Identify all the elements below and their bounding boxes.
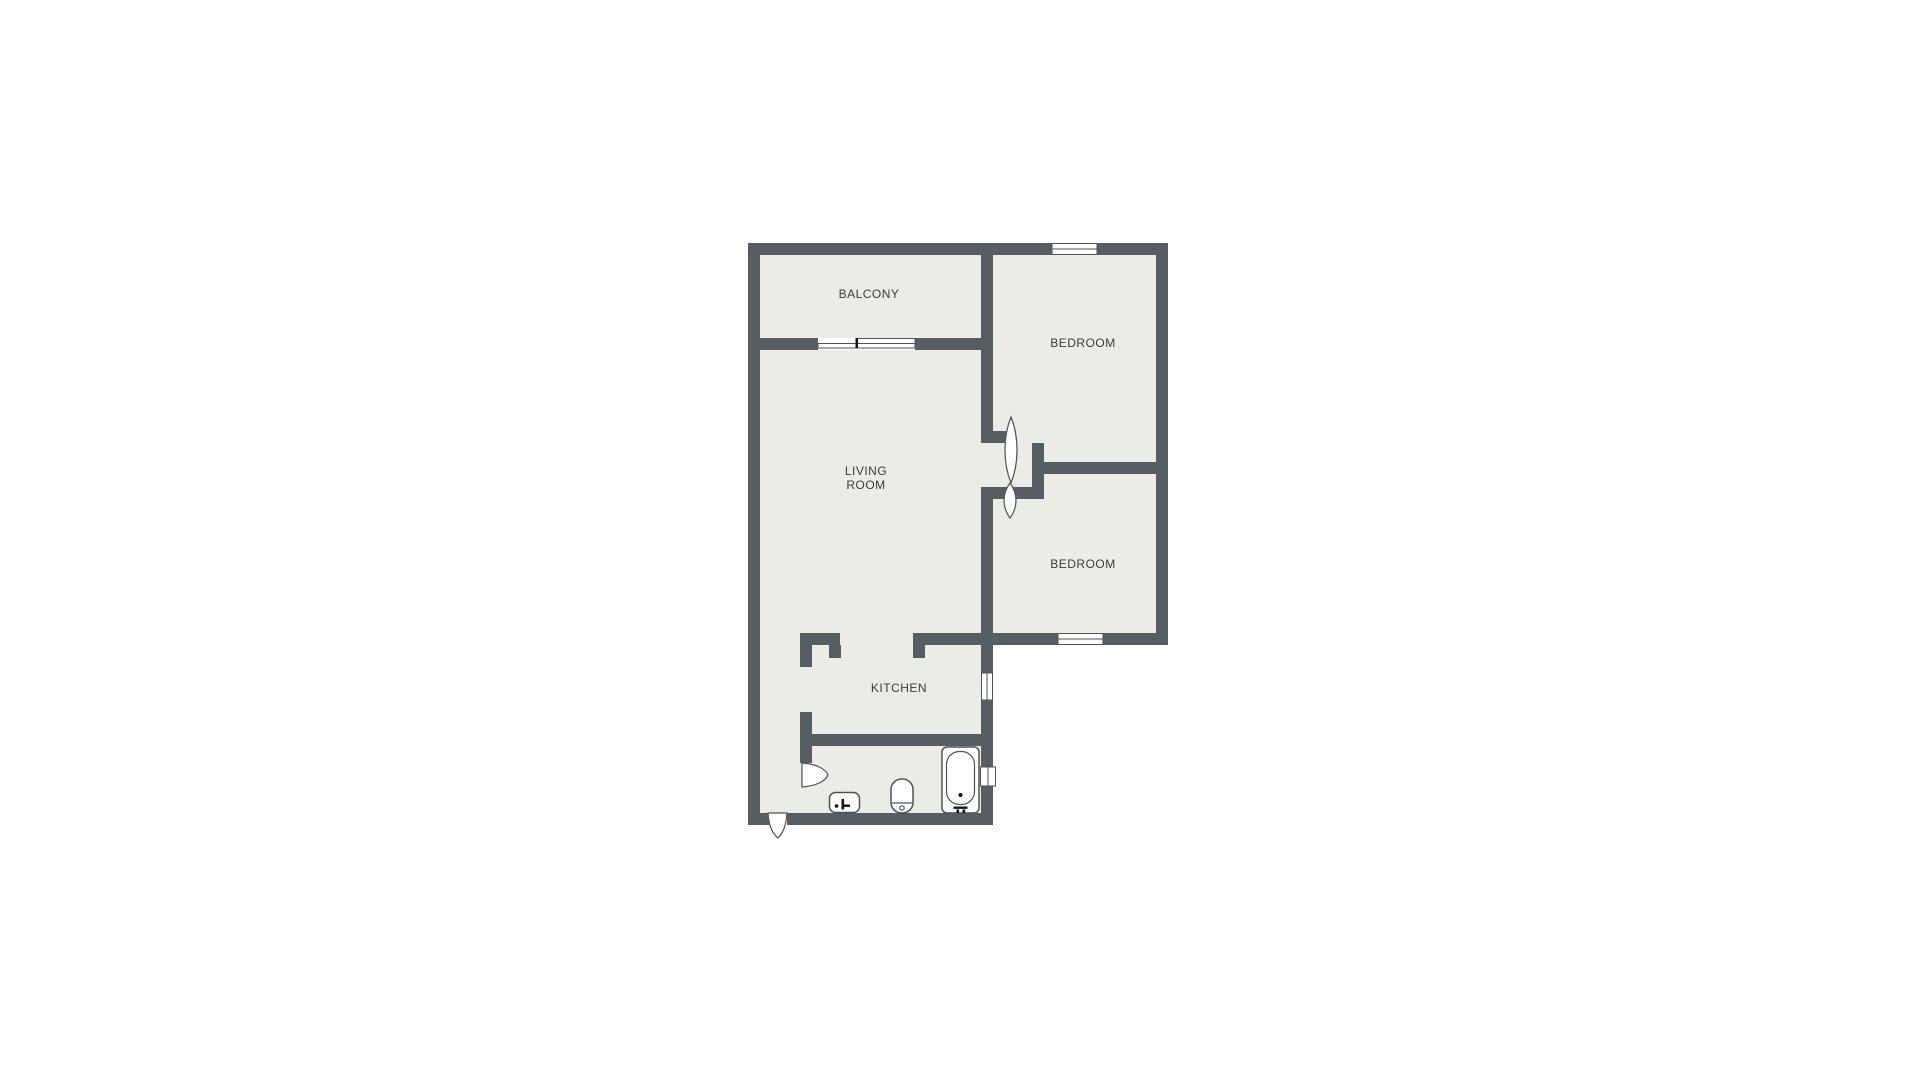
room-label-balcony: BALCONY [839,287,900,301]
sliding-door-panel [857,339,915,344]
sink-drain [835,804,839,808]
bathtub-icon [942,747,979,813]
wall-living-bedroom-upper [981,243,993,431]
wall-top [748,243,1168,255]
room-label-living-line1: LIVING [845,464,887,478]
wall-kitchen-left-upper [800,633,812,667]
sink-basin [830,793,860,813]
room-label-bedroom-top: BEDROOM [1050,336,1116,350]
wall-bottom-left-of-entry [748,813,769,825]
room-label-kitchen: KITCHEN [871,681,927,695]
wall-kitchen-opening-jamb-left [829,645,841,658]
sink-icon [830,793,860,813]
wall-right-bedrooms [1156,243,1168,645]
sink-tap-spout [844,805,850,807]
wall-balcony-divider-left [748,338,818,350]
wall-bathroom-top [800,734,993,746]
door-swing-icon-entry [768,813,787,838]
window-icon [1058,634,1103,645]
bathtub-tap-leg-right [963,810,966,814]
bathtub-outer [942,747,979,813]
wall-kitchen-top-right-seg [913,633,1168,645]
window-icon [1052,244,1097,255]
floor-plan: BALCONY BEDROOM BEDROOM LIVING ROOM KITC… [0,0,1920,1080]
sink-tap [842,799,845,810]
bathtub-tap [954,807,968,809]
wall-left [748,243,760,825]
sliding-door-track [818,344,915,349]
sliding-door-stop [856,338,859,348]
room-label-living-line2: ROOM [846,478,885,492]
wall-bottom-main [787,813,993,825]
floor-bedroom-wing [993,255,1156,633]
bathtub-drain [959,793,963,797]
window-icon [981,767,996,786]
toilet-bowl [891,779,913,813]
toilet-icon [891,779,913,813]
wall-bedroom-divider [1044,462,1168,474]
bathtub-tap-leg-left [957,810,960,814]
window-icon [982,673,993,700]
sliding-door-icon [818,338,915,350]
wall-kitchen-opening-jamb-right [913,645,925,658]
room-label-bedroom-bottom: BEDROOM [1050,557,1116,571]
